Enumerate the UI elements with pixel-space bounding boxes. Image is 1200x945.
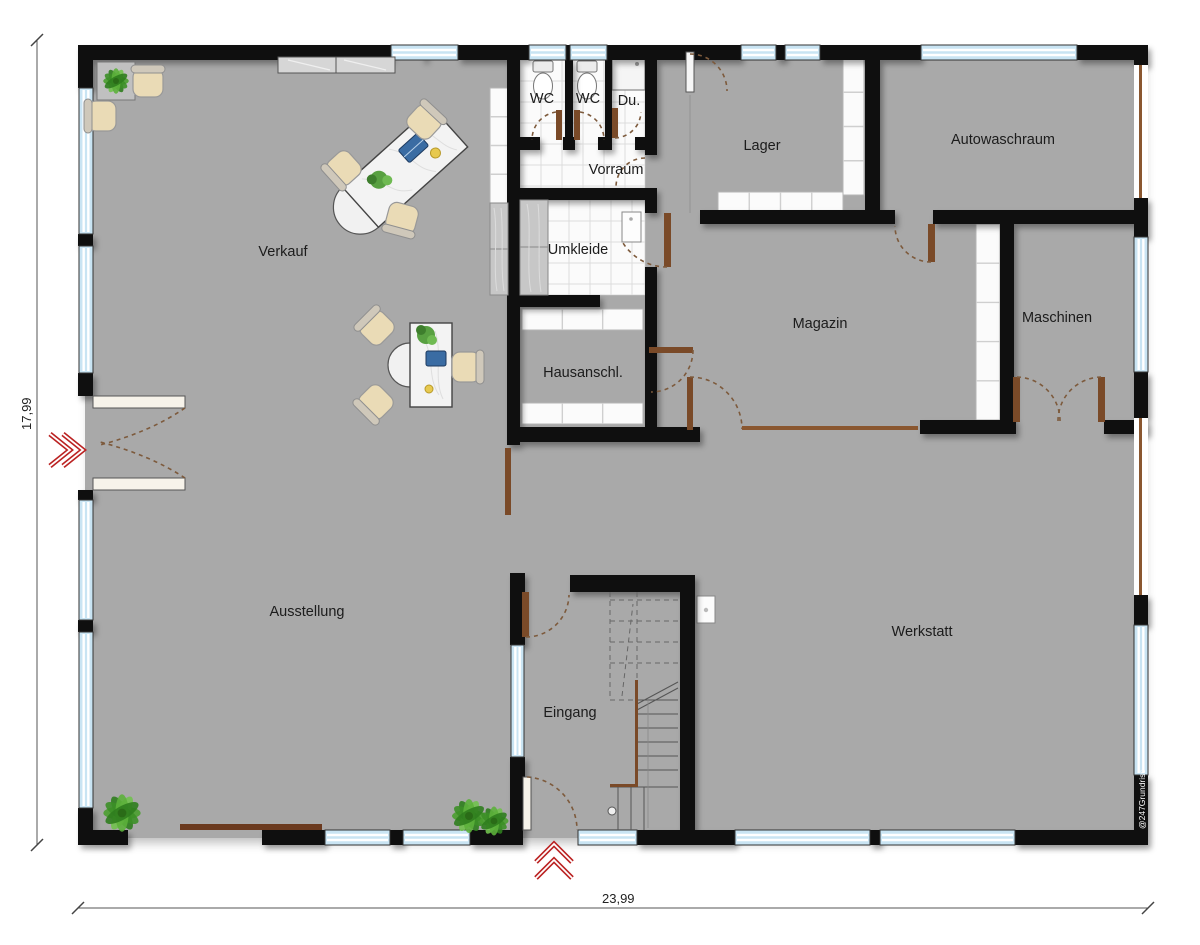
wall-segment: [566, 45, 570, 60]
wall-segment: [776, 45, 785, 60]
open-partition: [742, 426, 918, 430]
wall-segment: [920, 420, 1016, 434]
front-entrance-double-chevron-up-icon: [536, 844, 572, 878]
wall-segment: [607, 45, 741, 60]
room-label-hausanschl: Hausanschl.: [543, 365, 623, 381]
wall-segment: [565, 60, 573, 140]
cabinet: [490, 203, 508, 295]
vehicle-gate: [1139, 418, 1142, 595]
shower-drain: [635, 62, 639, 66]
room-label-autowaschraum: Autowaschraum: [951, 132, 1055, 148]
room-label-du: Du.: [618, 93, 641, 109]
wall-segment: [458, 45, 529, 60]
sideboard: [278, 57, 395, 73]
wall-segment: [78, 620, 93, 632]
room-label-lager: Lager: [743, 138, 780, 154]
wall-segment: [645, 188, 657, 213]
wall-segment: [1000, 224, 1014, 420]
door-leaf: [1098, 377, 1105, 422]
door-leaf: [505, 448, 511, 515]
window: [921, 45, 1077, 60]
wall-segment: [635, 137, 657, 150]
side-entrance-double-chevron-right-icon: [50, 434, 83, 466]
wall-segment: [680, 592, 695, 830]
wall-segment: [507, 427, 700, 442]
door-leaf: [93, 478, 185, 490]
window: [570, 45, 607, 60]
room-label-werkstatt: Werkstatt: [892, 624, 953, 640]
window: [403, 830, 470, 845]
wall-segment: [390, 830, 403, 845]
wall-segment: [700, 210, 895, 224]
wall-segment: [262, 830, 325, 845]
wall-segment: [865, 60, 880, 210]
door-leaf: [687, 377, 693, 430]
room-label-magazin: Magazin: [793, 316, 848, 332]
wall-segment: [78, 808, 93, 845]
door-leaf: [928, 224, 935, 262]
wall-segment: [870, 830, 880, 845]
wall-segment: [563, 137, 575, 150]
dimension-width-label: 23,99: [602, 891, 635, 906]
sink-tap: [629, 217, 633, 221]
desk-accessory: [425, 385, 433, 393]
room-label-verkauf: Verkauf: [258, 244, 308, 260]
plant-center: [113, 78, 119, 84]
room-label-wc1: WC: [530, 91, 554, 107]
wall-segment: [78, 45, 93, 88]
shelf-unit: [976, 224, 1000, 420]
wall-segment: [520, 137, 540, 150]
window: [391, 45, 458, 60]
window: [1134, 625, 1148, 775]
chair: [84, 99, 116, 133]
window: [325, 830, 390, 845]
room-label-wc2: WC: [576, 91, 600, 107]
door-leaf: [556, 110, 562, 140]
room-label-umkleide: Umkleide: [548, 242, 608, 258]
door-leaf: [522, 592, 529, 637]
display-rail: [180, 824, 322, 830]
chair-back: [84, 99, 92, 133]
laptop: [426, 351, 446, 366]
door-leaf: [686, 52, 694, 92]
wall-segment: [1015, 830, 1148, 845]
door-leaf: [93, 396, 185, 408]
wall-segment: [933, 210, 1148, 224]
stair-rail-wood: [635, 680, 638, 787]
vehicle-gate: [1139, 65, 1142, 198]
chair: [452, 350, 484, 384]
stair-rail-wood: [610, 784, 637, 787]
window: [785, 45, 820, 60]
wall-segment: [507, 60, 520, 445]
wall-segment: [520, 295, 600, 307]
window: [79, 246, 93, 373]
window: [1134, 237, 1148, 372]
door-leaf: [664, 213, 671, 267]
chair: [131, 65, 165, 97]
wall-segment: [605, 60, 612, 140]
door-leaf: [1013, 377, 1020, 422]
watermark: @247Grundriss: [1137, 769, 1147, 829]
sink: [622, 212, 641, 242]
plant-center: [465, 812, 473, 820]
wall-segment: [78, 234, 93, 246]
window: [511, 645, 524, 757]
window: [79, 632, 93, 808]
window: [529, 45, 566, 60]
door-leaf: [649, 347, 693, 353]
chair-back: [131, 65, 165, 73]
window: [880, 830, 1015, 845]
stair-newel-post: [608, 807, 616, 815]
wall-segment: [1134, 595, 1148, 625]
dimension-height-label: 17,99: [19, 397, 34, 430]
floor-plan-canvas: 17,99 23,99: [0, 0, 1200, 940]
window: [735, 830, 870, 845]
wall-segment: [1134, 372, 1148, 418]
shelf-unit: [522, 403, 643, 424]
wall-segment: [820, 45, 921, 60]
door-leaf: [523, 777, 531, 830]
wall-segment: [1134, 45, 1148, 65]
door-leaf: [612, 108, 618, 138]
wall-segment: [598, 137, 612, 150]
shower-tray: [612, 57, 645, 90]
plant-center: [491, 818, 498, 825]
chair-back: [476, 350, 484, 384]
locker-wardrobe: [520, 200, 548, 295]
door-leaf: [574, 110, 580, 140]
wall-segment: [78, 373, 93, 396]
room-label-ausstellung: Ausstellung: [270, 604, 345, 620]
wall-segment: [637, 830, 735, 845]
wall-segment: [520, 188, 645, 200]
window: [741, 45, 776, 60]
room-label-vorraum: Vorraum: [589, 162, 644, 178]
window: [578, 830, 637, 845]
room-label-maschinen: Maschinen: [1022, 310, 1092, 326]
wall-segment: [570, 575, 695, 592]
room-label-eingang: Eingang: [543, 705, 596, 721]
shelf-unit: [522, 309, 643, 330]
panel-knob: [704, 608, 708, 612]
window: [79, 500, 93, 620]
plant-center: [118, 809, 127, 818]
wall-segment: [78, 490, 93, 500]
